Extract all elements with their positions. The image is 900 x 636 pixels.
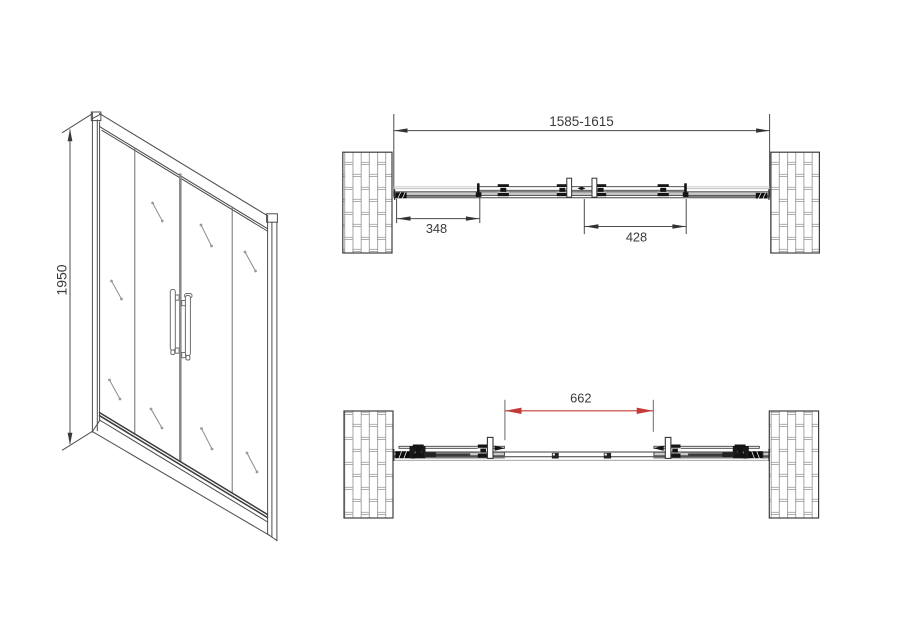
svg-text:1585-1615: 1585-1615 — [549, 114, 614, 129]
svg-text:1950: 1950 — [54, 264, 70, 295]
svg-text:662: 662 — [570, 391, 591, 406]
svg-text:348: 348 — [426, 221, 447, 236]
svg-text:428: 428 — [626, 229, 647, 244]
